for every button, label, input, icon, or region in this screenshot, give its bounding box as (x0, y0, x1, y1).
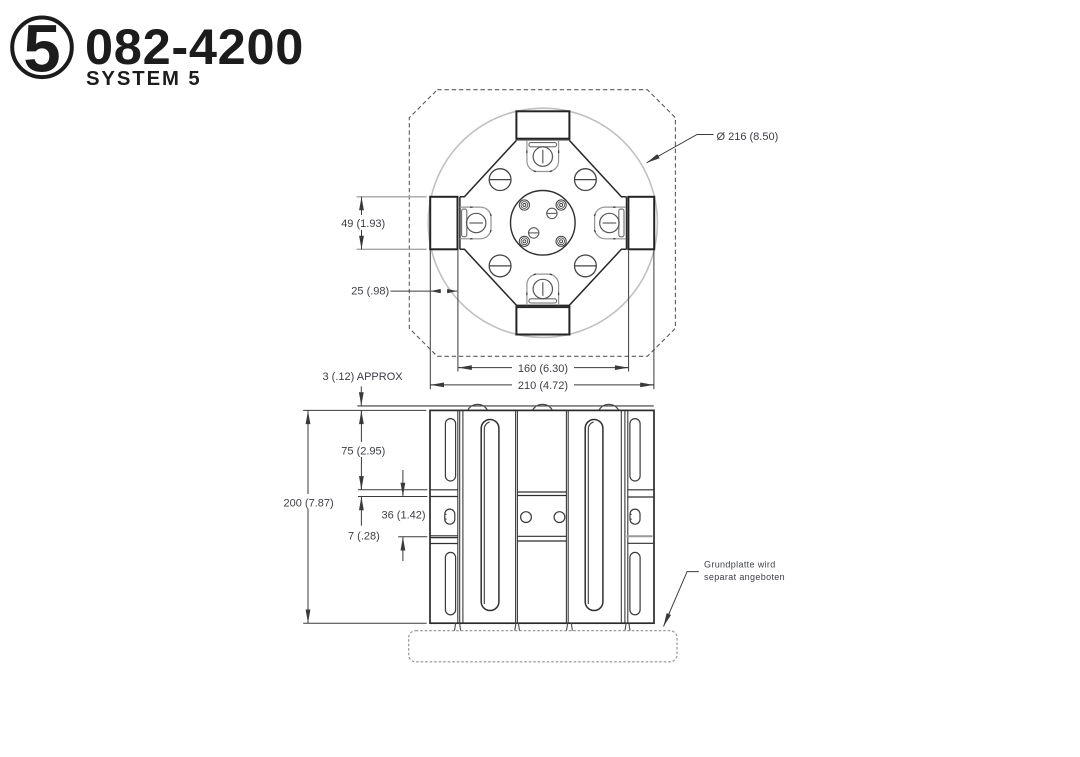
svg-text:SYSTEM 5: SYSTEM 5 (86, 68, 202, 90)
svg-text:Ø 216 (8.50): Ø 216 (8.50) (717, 131, 779, 143)
svg-text:25 (.98): 25 (.98) (351, 286, 389, 298)
svg-text:7 (.28): 7 (.28) (348, 531, 380, 543)
svg-text:210 (4.72): 210 (4.72) (518, 380, 568, 392)
svg-text:49 (1.93): 49 (1.93) (341, 218, 385, 230)
svg-text:5: 5 (23, 12, 60, 87)
svg-text:75 (2.95): 75 (2.95) (341, 445, 385, 457)
svg-text:200 (7.87): 200 (7.87) (284, 498, 334, 510)
svg-text:separat angeboten: separat angeboten (704, 572, 785, 582)
svg-text:Grundplatte wird: Grundplatte wird (704, 560, 776, 570)
svg-text:36 (1.42): 36 (1.42) (382, 510, 426, 522)
svg-text:082-4200: 082-4200 (85, 18, 304, 75)
svg-text:160 (6.30): 160 (6.30) (518, 363, 568, 375)
svg-text:3 (.12) APPROX: 3 (.12) APPROX (323, 371, 404, 383)
